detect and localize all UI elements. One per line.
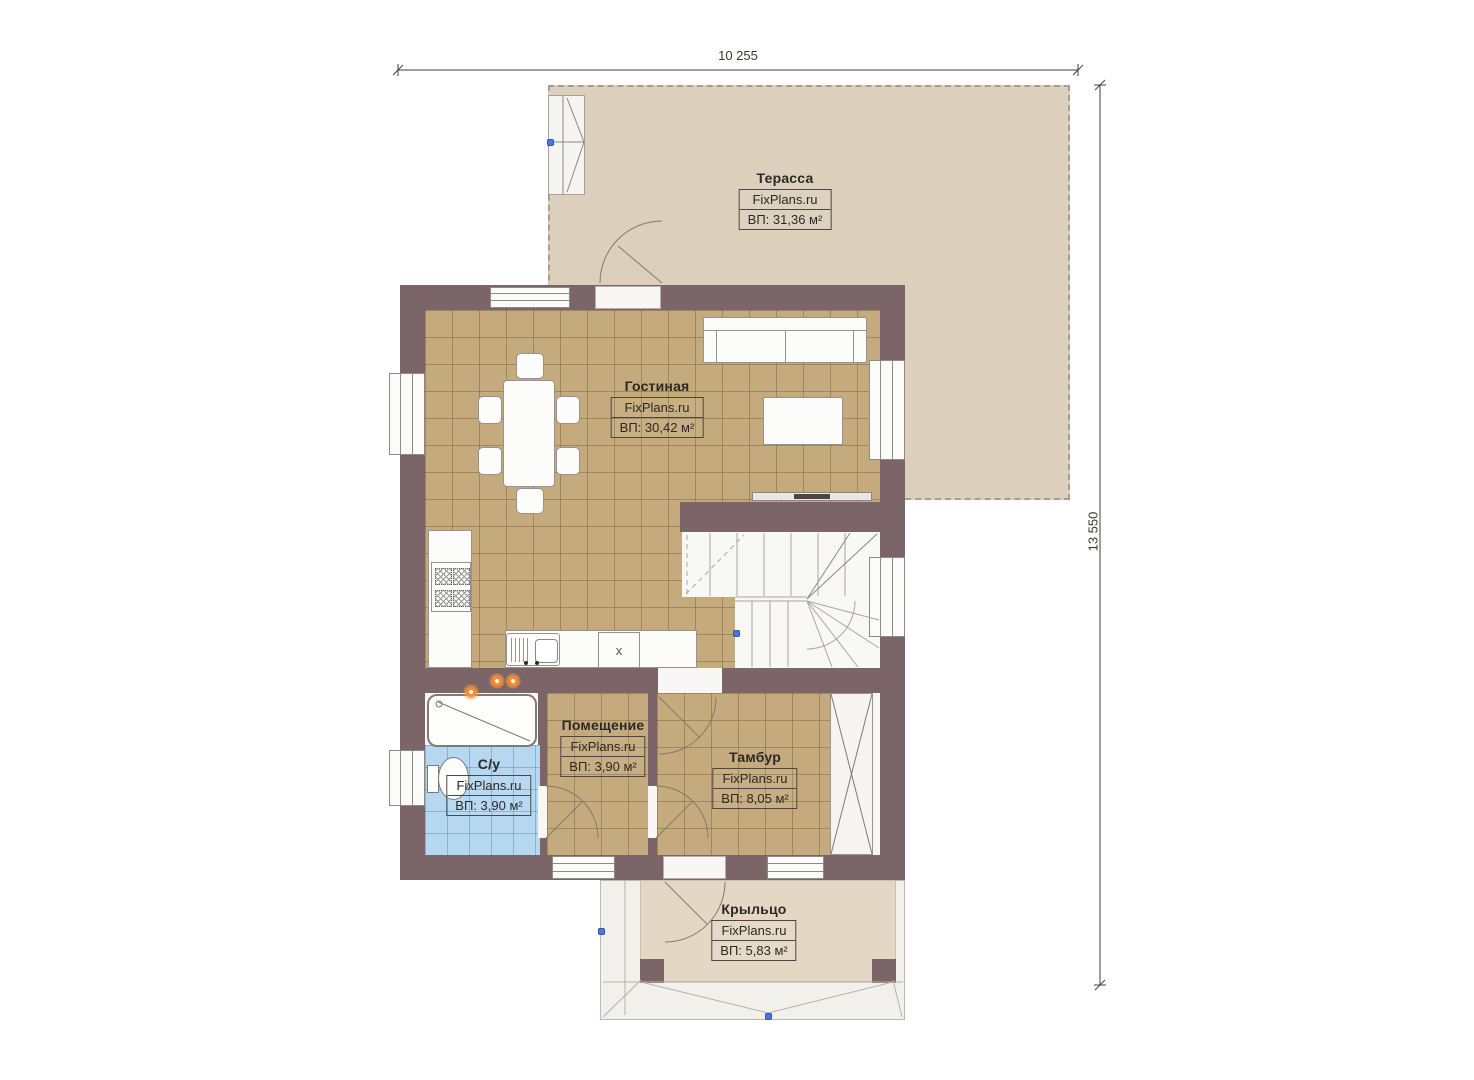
window-left-living [389,373,425,455]
dining-chair [556,447,580,475]
burner-icon [453,590,470,607]
orange-knob-icon [505,673,521,689]
window-right-terrace [869,360,905,460]
orange-knob-icon [489,673,505,689]
room-info-box: FixPlans.ru ВП: 31,36 м² [739,189,832,230]
reference-marker-icon [765,1013,772,1020]
room-title: Крыльцо [711,901,796,917]
window-bottom-utility [552,856,615,879]
living-label: Гостиная FixPlans.ru ВП: 30,42 м² [611,378,704,438]
room-info-box: FixPlans.ru ВП: 3,90 м² [446,775,531,816]
dining-chair [516,488,544,514]
stair-wall-band [680,502,880,532]
area-text: ВП: 31,36 м² [740,209,831,229]
door-opening-hall-vestibule [658,668,722,693]
brand-text: FixPlans.ru [713,769,796,788]
porch-post-left [640,959,664,983]
burner-icon [453,568,470,585]
brand-text: FixPlans.ru [612,398,703,417]
dining-chair [478,447,502,475]
appliance-unit: x [598,632,640,668]
orange-knob-icon [463,684,479,700]
coffee-table [763,397,843,445]
dimension-height-label: 13 550 [1086,497,1101,567]
room-title: Помещение [560,717,645,733]
room-info-box: FixPlans.ru ВП: 5,83 м² [711,920,796,961]
dining-chair [516,353,544,379]
stair-lower-flight [735,597,880,668]
burner-icon [435,568,452,585]
room-info-box: FixPlans.ru ВП: 8,05 м² [712,768,797,809]
room-title: Тамбур [712,749,797,765]
porch-post-right [872,959,896,983]
dining-chair [556,396,580,424]
drainboard-icon [511,638,531,662]
area-text: ВП: 5,83 м² [712,940,795,960]
sink-tap-dot [524,661,528,665]
reference-marker-icon [547,139,554,146]
burner-icon [435,590,452,607]
door-opening-utility-vestibule [648,786,657,838]
utility-label: Помещение FixPlans.ru ВП: 3,90 м² [560,717,645,777]
bathroom-label: С/у FixPlans.ru ВП: 3,90 м² [446,756,531,816]
sofa [703,317,867,363]
room-title: Гостиная [611,378,704,394]
kitchen-sink [506,633,560,666]
room-title: Терасса [739,170,832,186]
window-right-stair [869,557,905,637]
terrace-door-opening [595,286,661,309]
dining-chair [478,396,502,424]
stair-upper-flight [682,532,880,597]
area-text: ВП: 3,90 м² [447,795,530,815]
stove [431,562,471,612]
vestibule-label: Тамбур FixPlans.ru ВП: 8,05 м² [712,749,797,809]
sink-bowl [535,639,558,663]
window-left-bathroom [389,750,425,806]
floor-plan-canvas: x [0,0,1474,1080]
room-info-box: FixPlans.ru ВП: 30,42 м² [611,397,704,438]
dining-table [503,380,555,487]
bathtub [427,694,537,747]
room-info-box: FixPlans.ru ВП: 3,90 м² [560,736,645,777]
brand-text: FixPlans.ru [447,776,530,795]
area-text: ВП: 3,90 м² [561,756,644,776]
area-text: ВП: 8,05 м² [713,788,796,808]
reference-marker-icon [598,928,605,935]
appliance-marker: x [616,643,623,658]
brand-text: FixPlans.ru [561,737,644,756]
terrace-label: Терасса FixPlans.ru ВП: 31,36 м² [739,170,832,230]
porch-label: Крыльцо FixPlans.ru ВП: 5,83 м² [711,901,796,961]
tv [794,494,830,499]
door-opening-bath-utility [538,786,547,838]
reference-marker-icon [733,630,740,637]
entrance-door-opening [663,856,726,879]
dimension-width-label: 10 255 [690,48,786,63]
area-text: ВП: 30,42 м² [612,417,703,437]
brand-text: FixPlans.ru [740,190,831,209]
sink-tap-dot [535,661,539,665]
room-title: С/у [446,756,531,772]
window-bottom-vestibule [767,856,824,879]
window-top [490,287,570,308]
brand-text: FixPlans.ru [712,921,795,940]
closet [830,693,873,855]
